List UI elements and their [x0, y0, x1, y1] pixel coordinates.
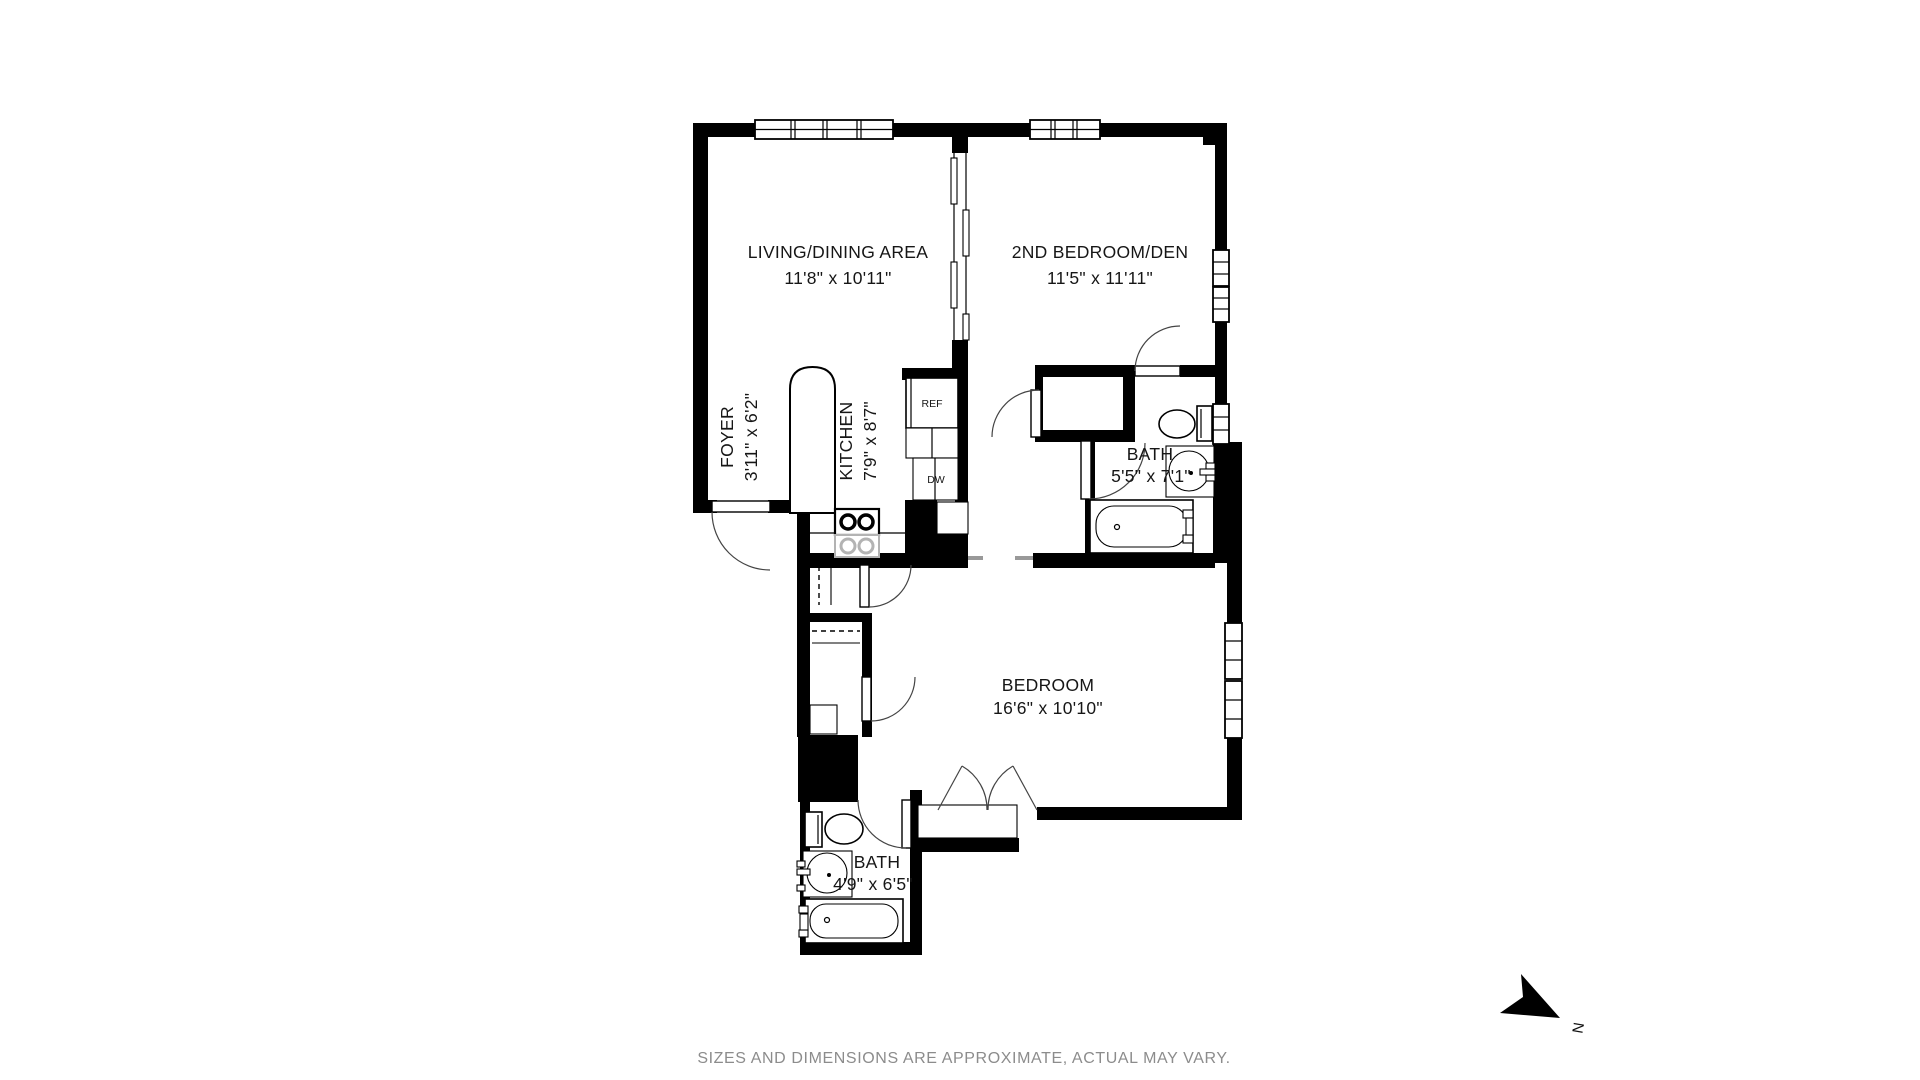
bath-upper-dims: 5'5" x 7'1" [1111, 466, 1191, 486]
burner [841, 539, 855, 553]
bedroom-right-windows [1225, 623, 1242, 738]
kitchen-label: KITCHEN [836, 402, 856, 481]
second-bedroom-dims: 11'5" x 11'11" [1047, 268, 1153, 288]
second-bedroom-top-window [1030, 120, 1100, 139]
refrigerator-label: REF [922, 398, 943, 410]
bedroom-dims: 16'6" x 10'10" [993, 698, 1103, 718]
second-bedroom-label: 2ND BEDROOM/DEN [1012, 242, 1189, 262]
living-top-window [755, 120, 893, 139]
second-bedroom-right-windows [1213, 250, 1229, 322]
bath-lower-label: BATH [854, 852, 901, 872]
kitchen-counter-return [937, 502, 968, 534]
door-recess [918, 805, 1017, 838]
burner [841, 515, 855, 529]
toilet [805, 812, 863, 847]
burner [859, 539, 873, 553]
bathtub [1090, 500, 1193, 553]
burner [859, 515, 873, 529]
bath-lower-dims: 4'9" x 6'5" [833, 874, 913, 894]
disclaimer-text: SIZES AND DIMENSIONS ARE APPROXIMATE, AC… [697, 1050, 1230, 1067]
bath-upper-window [1213, 404, 1229, 444]
stove [835, 509, 879, 557]
bedroom-label: BEDROOM [1002, 675, 1095, 695]
living-dining-dims: 11'8" x 10'11" [784, 268, 891, 288]
bathtub [799, 899, 903, 943]
floor-plan: LIVING/DINING AREA 11'8" x 10'11" 2ND BE… [0, 0, 1920, 1080]
dishwasher-label: DW [927, 474, 945, 486]
foyer-dims: 3'11" x 6'2" [741, 393, 761, 482]
kitchen-island [790, 367, 835, 513]
kitchen-dims: 7'9" x 8'7" [860, 401, 880, 481]
living-dining-label: LIVING/DINING AREA [748, 242, 928, 262]
closet-shelf [810, 705, 837, 734]
bath-upper-label: BATH [1127, 444, 1174, 464]
foyer-label: FOYER [717, 406, 737, 468]
